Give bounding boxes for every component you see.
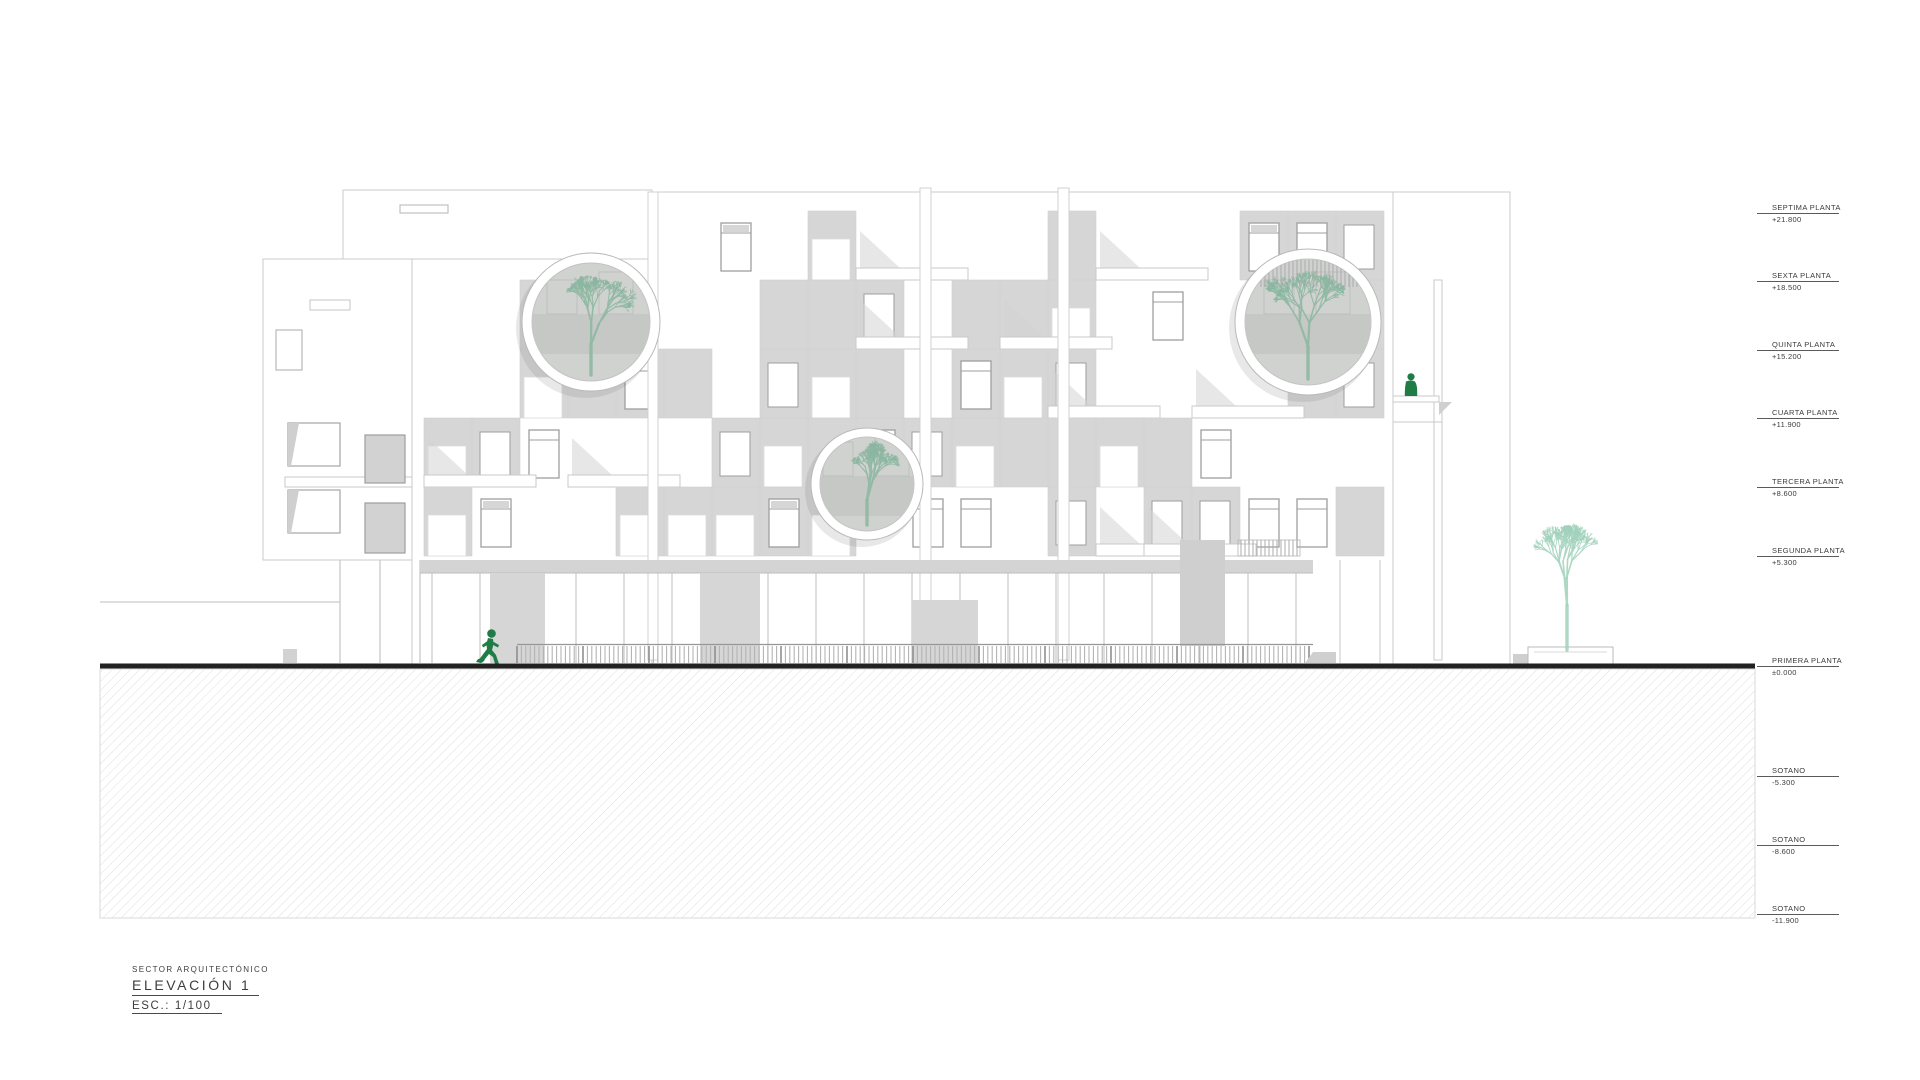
pilaster (648, 192, 658, 660)
level-label: CUARTA PLANTA (1772, 409, 1838, 417)
level-elevation: -8.600 (1772, 848, 1795, 856)
level-elevation: +15.200 (1772, 353, 1801, 361)
level-marker: TERCERA PLANTA+8.600 (1757, 487, 1839, 488)
window (276, 330, 302, 370)
level-elevation: +18.500 (1772, 284, 1801, 292)
level-label: SOTANO (1772, 905, 1806, 913)
tower-balcony-slab (1393, 396, 1439, 402)
level-marker: SEGUNDA PLANTA+5.300 (1757, 556, 1839, 557)
street-tree (1533, 523, 1598, 650)
pilaster (1058, 188, 1069, 660)
level-elevation: +21.800 (1772, 216, 1801, 224)
elevation-drawing (0, 0, 1920, 1080)
level-elevation: ±0.000 (1772, 669, 1797, 677)
level-marker: SOTANO-5.300 (1757, 776, 1839, 777)
title-block: SECTOR ARQUITECTÓNICO ELEVACIÓN 1 ESC.: … (132, 965, 269, 1014)
level-elevation: -11.900 (1772, 917, 1799, 925)
storefront-panel (700, 573, 760, 663)
level-label: PRIMERA PLANTA (1772, 657, 1842, 665)
ground-pier (1180, 540, 1225, 646)
scale-label: ESC.: 1/100 (132, 999, 222, 1014)
basement-hatch (100, 669, 1755, 918)
level-marker: SOTANO-8.600 (1757, 845, 1839, 846)
level-label: SOTANO (1772, 767, 1806, 775)
drawing-title: ELEVACIÓN 1 (132, 977, 259, 996)
level-marker: QUINTA PLANTA+15.200 (1757, 350, 1839, 351)
slot-window (310, 300, 350, 310)
level-elevation: +11.900 (1772, 421, 1801, 429)
pilaster (920, 188, 931, 660)
right-tower-section (1393, 192, 1510, 667)
vent-grille (1238, 540, 1300, 556)
level-elevation: +5.300 (1772, 559, 1797, 567)
level-elevation: +8.600 (1772, 490, 1797, 498)
penthouse-block (343, 190, 652, 260)
level-label: SEXTA PLANTA (1772, 272, 1831, 280)
level-marker: SOTANO-11.900 (1757, 914, 1839, 915)
site-lines-left (100, 560, 420, 663)
level-marker: PRIMERA PLANTA±0.000 (1757, 666, 1839, 667)
level-label: SEPTIMA PLANTA (1772, 204, 1841, 212)
tower-slot (1434, 280, 1442, 660)
level-label: TERCERA PLANTA (1772, 478, 1844, 486)
ground-line (100, 664, 1755, 670)
level-marker: CUARTA PLANTA+11.900 (1757, 418, 1839, 419)
penthouse-slot-window (400, 205, 448, 213)
sector-label: SECTOR ARQUITECTÓNICO (132, 965, 269, 974)
level-marker: SEXTA PLANTA+18.500 (1757, 281, 1839, 282)
level-label: SEGUNDA PLANTA (1772, 547, 1845, 555)
level-marker: SEPTIMA PLANTA+21.800 (1757, 213, 1839, 214)
elevation-sheet: SEPTIMA PLANTA+21.800SEXTA PLANTA+18.500… (0, 0, 1920, 1080)
level-label: QUINTA PLANTA (1772, 341, 1835, 349)
level-label: SOTANO (1772, 836, 1806, 844)
level-elevation: -5.300 (1772, 779, 1795, 787)
street-planter (1513, 647, 1613, 664)
